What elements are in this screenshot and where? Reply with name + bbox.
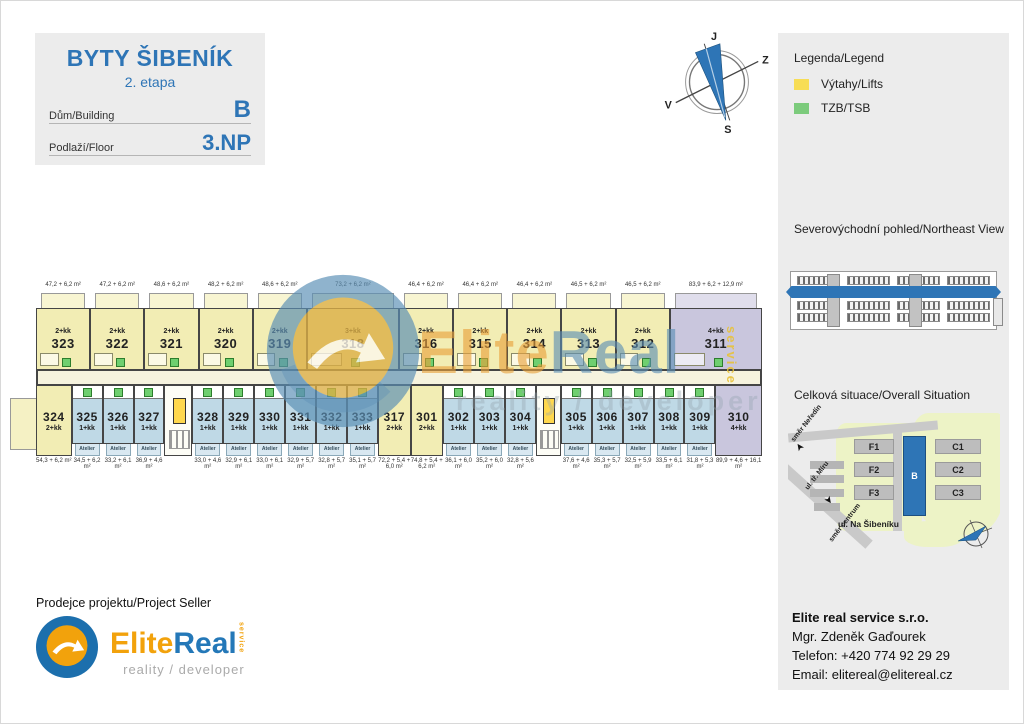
project-title: BYTY ŠIBENÍK [49,45,251,72]
tzb-unit [665,388,674,397]
unit-body: 3321+kk [316,385,347,444]
unit-body: 3291+kk [223,385,254,444]
unit-body: 2+kk313 [561,308,615,370]
unit-body: 3311+kk [285,385,316,444]
unit-number: 317 [384,410,406,424]
unit-type: 2+kk [472,328,488,335]
unit-area: 35,3 + 5,7 m² [592,456,623,472]
logo-text: EliteRealservice reality / developer [110,622,245,677]
unit-317: 3172+kk72,2 + 5,4 + 6,0 m² [378,385,411,472]
lift-color-swatch [794,79,809,90]
unit-body: 2+kk312 [616,308,670,370]
atelier-label: Atelier [508,444,533,456]
compass-north-label: J [711,31,717,43]
building-row: Dům/Building B [49,98,251,124]
unit-number: 326 [107,410,129,424]
logo-elite: Elite [110,627,173,660]
balcony [512,293,556,308]
core-spacer [164,456,192,472]
bathroom-strip [348,386,377,399]
legend-item-tzb: TZB/TSB [794,101,870,115]
unit-area: 83,9 + 6,2 + 12,9 m² [670,282,762,293]
situation-building-C3: C3 [935,485,981,500]
tzb-unit [83,388,92,397]
unit-number: 301 [416,410,438,424]
situation-building-C2: C2 [935,462,981,477]
balcony [258,293,302,308]
unit-body: 2+kk322 [90,308,144,370]
unit-332: 3321+kkAtelier32,8 + 5,7 m² [316,385,347,472]
unit-area: 47,2 + 6,2 m² [90,282,144,293]
unit-number: 313 [577,336,600,351]
unit-body: 3104+kk [715,385,761,456]
unit-number: 328 [197,410,219,424]
unit-body: 3091+kk [684,385,715,444]
balcony [10,398,37,450]
unit-type: 1+kk [355,425,371,432]
core-spacer [536,456,561,472]
balcony [149,293,193,308]
unit-type: 2+kk [635,328,651,335]
unit-number: 303 [479,410,501,424]
bathroom-strip [224,386,253,399]
unit-area: 34,5 + 6,2 m² [72,456,103,472]
lift-shaft [173,398,186,423]
legend-title: Legenda/Legend [794,51,884,65]
lift-shaft [543,398,555,423]
unit-number: 323 [51,336,74,351]
unit-area: 32,9 + 5,7 m² [285,456,316,472]
atelier-label: Atelier [257,444,282,456]
unit-320: 48,2 + 6,2 m²2+kk320 [199,282,253,370]
unit-number: 330 [259,410,281,424]
bathroom-strip [286,386,315,399]
elevation-stair-tower [827,274,840,327]
unit-body: 2+kk314 [507,308,561,370]
seller-heading: Prodejce projektu/Project Seller [36,596,211,610]
unit-321: 48,6 + 6,2 m²2+kk321 [144,282,198,370]
tzb-unit [695,388,704,397]
unit-303: 3031+kkAtelier35,2 + 6,0 m² [474,385,505,472]
unit-319: 48,6 + 6,2 m²2+kk319 [253,282,307,370]
sidebar: Legenda/Legend Výtahy/Lifts TZB/TSB Seve… [778,33,1009,690]
legend-tzb-label: TZB/TSB [821,101,870,115]
unit-area: 48,6 + 6,2 m² [144,282,198,293]
unit-area: 36,9 + 4,6 m² [134,456,165,472]
bathroom-strip [506,386,535,399]
unit-body: 3071+kk [623,385,654,444]
stair-lift-core [164,385,192,472]
logo-real: Real [173,627,236,660]
unit-number: 332 [321,410,343,424]
unit-type: 1+kk [110,425,126,432]
bathroom-strip [104,386,133,399]
floor-row: Podlaží/Floor 3.NP [49,132,251,156]
unit-type: 2+kk [109,328,125,335]
unit-number: 325 [76,410,98,424]
contact-email: Email: elitereal@elitereal.cz [792,666,953,685]
bathroom-strip [193,386,222,399]
floorplan-sheet: BYTY ŠIBENÍK 2. etapa Dům/Building B Pod… [0,0,1024,724]
unit-body: 2+kk319 [253,308,307,370]
tzb-unit [516,388,525,397]
unit-area: 36,1 + 6,0 m² [443,456,474,472]
atelier-label: Atelier [106,444,131,456]
elevation-stair-tower [909,274,922,327]
atelier-label: Atelier [75,444,100,456]
unit-type: 1+kk [630,425,646,432]
unit-area: 46,4 + 6,2 m² [399,282,453,293]
unit-body: 3281+kk [192,385,223,444]
unit-323: 47,2 + 6,2 m²2+kk323 [36,282,90,370]
unit-number: 315 [469,336,492,351]
core-body [164,385,192,456]
unit-type: 1+kk [200,425,216,432]
unit-329: 3291+kkAtelier32,9 + 6,1 m² [223,385,254,472]
atelier-label: Atelier [350,444,375,456]
atelier-label: Atelier [446,444,471,456]
bathroom-strip [73,386,102,399]
balcony [41,293,85,308]
balcony [458,293,502,308]
project-stage: 2. etapa [49,74,251,90]
logo-service: service [238,622,245,653]
unit-number: 305 [565,410,587,424]
unit-area: 32,8 + 5,6 m² [505,456,536,472]
balcony [566,293,610,308]
situation-building-B: B [903,436,926,516]
bathroom-strip [655,386,684,399]
unit-area: 31,8 + 5,3 m² [684,456,715,472]
unit-318: 73,2 + 6,2 m²3+kk318 [307,282,399,370]
unit-333: 3331+kkAtelier35,1 + 5,7 m² [347,385,378,472]
unit-number: 314 [523,336,546,351]
tzb-color-swatch [794,103,809,114]
unit-body: 3041+kk [505,385,536,444]
atelier-label: Atelier [226,444,251,456]
balcony [404,293,448,308]
unit-area: 35,1 + 5,7 m² [347,456,378,472]
unit-body: 3+kk318 [307,308,399,370]
floor-value: 3.NP [202,132,251,154]
unit-309: 3091+kkAtelier31,8 + 5,3 m² [684,385,715,472]
elevation-window-row [797,313,990,322]
atelier-label: Atelier [626,444,651,456]
tzb-unit [634,388,643,397]
unit-body: 3251+kk [72,385,103,444]
unit-type: 4+kk [708,328,724,335]
unit-area: 74,8 + 5,4 + 6,2 m² [411,456,444,472]
balcony [312,293,394,308]
unit-type: 1+kk [324,425,340,432]
unit-313: 46,5 + 6,2 m²2+kk313 [561,282,615,370]
unit-type: 1+kk [293,425,309,432]
unit-306: 3061+kkAtelier35,3 + 5,7 m² [592,385,623,472]
legend-item-lifts: Výtahy/Lifts [794,77,883,91]
legend-lifts-label: Výtahy/Lifts [821,77,883,91]
staircase [540,430,559,450]
unit-number: 322 [106,336,129,351]
unit-type: 1+kk [79,425,95,432]
unit-area: 46,5 + 6,2 m² [561,282,615,293]
compass-east-label: Z [762,54,769,66]
road [893,429,902,531]
atelier-label: Atelier [687,444,712,456]
unit-body: 3061+kk [592,385,623,444]
unit-area: 47,2 + 6,2 m² [36,282,90,293]
unit-324: 3242+kk54,3 + 6,2 m² [36,385,72,472]
unit-body: 2+kk320 [199,308,253,370]
unit-316: 46,4 + 6,2 m²2+kk316 [399,282,453,370]
unit-type: 1+kk [262,425,278,432]
unit-325: 3251+kkAtelier34,5 + 6,2 m² [72,385,103,472]
tzb-unit [265,388,274,397]
tzb-unit [296,388,305,397]
unit-type: 2+kk [386,425,402,432]
unit-type: 2+kk [419,425,435,432]
unit-308: 3081+kkAtelier33,5 + 6,1 m² [654,385,685,472]
unit-body: 3271+kk [134,385,165,444]
atelier-label: Atelier [657,444,682,456]
unit-number: 307 [627,410,649,424]
bathroom-strip [593,386,622,399]
unit-area: 33,5 + 6,1 m² [654,456,685,472]
tzb-unit [114,388,123,397]
corridor [36,370,762,385]
atelier-label: Atelier [564,444,589,456]
unit-body: 3331+kk [347,385,378,444]
situation-building-F2: F2 [854,462,894,477]
unit-302: 3021+kkAtelier36,1 + 6,0 m² [443,385,474,472]
contact-block: Elite real service s.r.o. Mgr. Zdeněk Ga… [792,609,953,684]
unit-type: 1+kk [482,425,498,432]
unit-type: 1+kk [692,425,708,432]
atelier-label: Atelier [477,444,502,456]
situation-title: Celková situace/Overall Situation [794,388,970,402]
elitereal-logo-icon [34,614,100,680]
contact-company: Elite real service s.r.o. [792,609,953,628]
map-compass-icon [954,515,996,553]
unit-area: 33,2 + 6,1 m² [103,456,134,472]
bathroom-strip [135,386,164,399]
unit-number: 302 [448,410,470,424]
elevation-annex [993,298,1003,326]
unit-area: 35,2 + 6,0 m² [474,456,505,472]
floor-plan: 47,2 + 6,2 m²2+kk32347,2 + 6,2 m²2+kk322… [36,282,762,472]
unit-type: 2+kk [581,328,597,335]
unit-area: 32,5 + 5,9 m² [623,456,654,472]
bathroom-strip [475,386,504,399]
balcony [95,293,139,308]
unit-type: 2+kk [218,328,234,335]
building-value: B [234,98,251,122]
tzb-unit [358,388,367,397]
unit-area: 33,0 + 6,1 m² [254,456,285,472]
situation-building-F1: F1 [854,439,894,454]
building-label: Dům/Building [49,110,114,122]
unit-area: 32,9 + 6,1 m² [223,456,254,472]
unit-body: 3031+kk [474,385,505,444]
unit-area: 33,0 + 4,6 m² [192,456,223,472]
atelier-label: Atelier [195,444,220,456]
core-body [536,385,561,456]
unit-body: 2+kk316 [399,308,453,370]
unit-326: 3261+kkAtelier33,2 + 6,1 m² [103,385,134,472]
floor-label: Podlaží/Floor [49,142,114,154]
unit-314: 46,4 + 6,2 m²2+kk314 [507,282,561,370]
unit-327: 3271+kkAtelier36,9 + 4,6 m² [134,385,165,472]
unit-number: 331 [290,410,312,424]
situation-map: směr Neředín ➤ ul. tř. Míru ➤ směr centr… [788,403,1000,561]
unit-type: 3+kk [345,328,361,335]
elevation-window-row [797,276,990,285]
unit-type: 1+kk [513,425,529,432]
unit-area: 46,4 + 6,2 m² [507,282,561,293]
unit-body: 3242+kk [36,385,72,456]
unit-area: 32,8 + 5,7 m² [316,456,347,472]
unit-304: 3041+kkAtelier32,8 + 5,6 m² [505,385,536,472]
balcony [675,293,757,308]
unit-body: 3301+kk [254,385,285,444]
compass-rose-icon: J Z V S [663,30,771,140]
bathroom-strip [255,386,284,399]
compass-west-label: V [665,100,673,112]
unit-311: 83,9 + 6,2 + 12,9 m²4+kk311 [670,282,762,370]
unit-area: 89,9 + 4,6 + 16,1 m² [715,456,761,472]
unit-body: 2+kk323 [36,308,90,370]
contact-phone: Telefon: +420 774 92 29 29 [792,647,953,666]
unit-area: 72,2 + 5,4 + 6,0 m² [378,456,411,472]
unit-type: 4+kk [731,425,747,432]
unit-315: 46,4 + 6,2 m²2+kk315 [453,282,507,370]
unit-number: 306 [596,410,618,424]
unit-312: 46,5 + 6,2 m²2+kk312 [616,282,670,370]
plan-row-top: 47,2 + 6,2 m²2+kk32347,2 + 6,2 m²2+kk322… [36,282,762,370]
unit-number: 321 [160,336,183,351]
unit-type: 1+kk [661,425,677,432]
bathroom-strip [685,386,714,399]
unit-type: 2+kk [164,328,180,335]
unit-body: 3172+kk [378,385,411,456]
atelier-label: Atelier [595,444,620,456]
tzb-unit [327,388,336,397]
unit-number: 329 [228,410,250,424]
unit-number: 310 [728,410,750,424]
balcony [204,293,248,308]
tzb-unit [485,388,494,397]
logo-tagline: reality / developer [110,662,245,677]
unit-type: 2+kk [55,328,71,335]
elevation-window-row [797,301,990,310]
unit-number: 308 [658,410,680,424]
unit-type: 2+kk [418,328,434,335]
unit-type: 2+kk [272,328,288,335]
plan-row-bottom: 3242+kk54,3 + 6,2 m²3251+kkAtelier34,5 +… [36,385,762,472]
unit-body: 3081+kk [654,385,685,444]
unit-310: 3104+kk89,9 + 4,6 + 16,1 m² [715,385,761,472]
unit-area: 37,6 + 4,6 m² [561,456,592,472]
unit-area: 46,4 + 6,2 m² [453,282,507,293]
situation-building-C1: C1 [935,439,981,454]
atelier-label: Atelier [319,444,344,456]
unit-body: 3051+kk [561,385,592,444]
unit-body: 3021+kk [443,385,474,444]
unit-number: 312 [631,336,654,351]
unit-body: 2+kk321 [144,308,198,370]
unit-number: 320 [214,336,237,351]
unit-type: 1+kk [141,425,157,432]
unit-301: 3012+kk74,8 + 5,4 + 6,2 m² [411,385,444,472]
unit-body: 3261+kk [103,385,134,444]
unit-type: 1+kk [231,425,247,432]
unit-322: 47,2 + 6,2 m²2+kk322 [90,282,144,370]
unit-328: 3281+kkAtelier33,0 + 4,6 m² [192,385,223,472]
unit-number: 304 [510,410,532,424]
tzb-unit [572,388,581,397]
atelier-label: Atelier [288,444,313,456]
staircase [169,430,191,450]
tzb-unit [234,388,243,397]
unit-area: 73,2 + 6,2 m² [307,282,399,293]
northeast-elevation [790,271,997,330]
unit-area: 46,5 + 6,2 m² [616,282,670,293]
unit-body: 4+kk311 [670,308,762,370]
contact-person: Mgr. Zdeněk Gaďourek [792,628,953,647]
tzb-unit [454,388,463,397]
tzb-unit [603,388,612,397]
unit-area: 48,2 + 6,2 m² [199,282,253,293]
unit-type: 2+kk [527,328,543,335]
unit-area: 54,3 + 6,2 m² [36,456,72,472]
bathroom-strip [317,386,346,399]
stair-lift-core [536,385,561,472]
situation-building-F3: F3 [854,485,894,500]
unit-type: 1+kk [599,425,615,432]
unit-type: 1+kk [568,425,584,432]
unit-number: 318 [341,336,364,351]
unit-area: 48,6 + 6,2 m² [253,282,307,293]
tzb-unit [144,388,153,397]
bathroom-strip [444,386,473,399]
title-block: BYTY ŠIBENÍK 2. etapa Dům/Building B Pod… [35,33,265,165]
bathroom-strip [562,386,591,399]
unit-type: 2+kk [46,425,62,432]
unit-body: 3012+kk [411,385,444,456]
balcony [621,293,665,308]
unit-type: 1+kk [451,425,467,432]
unit-number: 316 [414,336,437,351]
northeast-view-title: Severovýchodní pohled/Northeast View [794,222,1004,236]
unit-number: 333 [352,410,374,424]
unit-body: 2+kk315 [453,308,507,370]
unit-number: 309 [689,410,711,424]
compass-south-label: S [724,124,731,136]
street-label-na-sibeniku: ul. Na Šibeníku [838,519,899,529]
atelier-label: Atelier [137,444,162,456]
unit-305: 3051+kkAtelier37,6 + 4,6 m² [561,385,592,472]
unit-331: 3311+kkAtelier32,9 + 5,7 m² [285,385,316,472]
unit-307: 3071+kkAtelier32,5 + 5,9 m² [623,385,654,472]
tzb-unit [203,388,212,397]
elitereal-logo: EliteRealservice reality / developer [34,614,245,680]
unit-number: 311 [705,336,727,351]
unit-330: 3301+kkAtelier33,0 + 6,1 m² [254,385,285,472]
unit-number: 327 [138,410,160,424]
floor-highlight-band [786,286,1001,298]
unit-number: 319 [268,336,291,351]
bathroom-strip [624,386,653,399]
unit-number: 324 [43,410,65,424]
